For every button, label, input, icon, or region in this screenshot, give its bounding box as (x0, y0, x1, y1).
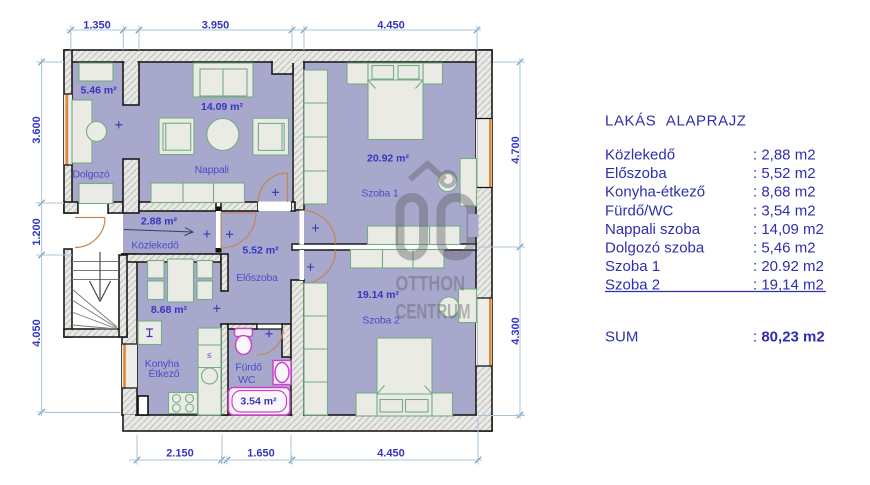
svg-text:CENTRUM: CENTRUM (396, 301, 471, 324)
svg-text:: 2,88 m2: : 2,88 m2 (753, 147, 816, 164)
svg-text:4.700: 4.700 (510, 136, 522, 164)
svg-text:14.09 m²: 14.09 m² (201, 101, 244, 113)
svg-text:1.650: 1.650 (247, 448, 275, 460)
svg-text:2.88 m²: 2.88 m² (141, 216, 178, 228)
svg-text:Szoba 2: Szoba 2 (362, 315, 399, 327)
svg-text:Dolgozó: Dolgozó (72, 169, 109, 181)
svg-text:Étkező: Étkező (149, 367, 180, 380)
svg-text:Fürdő/WC: Fürdő/WC (605, 202, 674, 219)
svg-text:Előszoba: Előszoba (605, 165, 667, 182)
svg-text:Nappali szoba: Nappali szoba (605, 221, 701, 238)
svg-text:SUM: SUM (605, 329, 638, 346)
svg-text:4.300: 4.300 (510, 317, 522, 345)
svg-text:Nappali: Nappali (195, 164, 229, 176)
svg-text:Dolgozó szoba: Dolgozó szoba (605, 240, 705, 257)
svg-text:2.150: 2.150 (166, 448, 194, 460)
svg-text:Konyha-étkező: Konyha-étkező (605, 184, 705, 201)
svg-text:3.950: 3.950 (202, 20, 230, 32)
svg-text:5.46 m²: 5.46 m² (81, 85, 118, 97)
svg-text:LAKÁS ALAPRAJZ: LAKÁS ALAPRAJZ (605, 113, 747, 130)
svg-text:3.600: 3.600 (31, 116, 43, 144)
svg-text:Szoba 1: Szoba 1 (361, 188, 398, 200)
svg-text:: 5,52 m2: : 5,52 m2 (753, 165, 816, 182)
svg-text:: 5,46 m2: : 5,46 m2 (753, 240, 816, 257)
svg-text:1.350: 1.350 (83, 20, 111, 32)
svg-text:: 8,68 m2: : 8,68 m2 (753, 184, 816, 201)
svg-text:WC: WC (238, 374, 256, 386)
svg-text:Előszoba: Előszoba (236, 272, 278, 284)
svg-text:: 3,54 m2: : 3,54 m2 (753, 202, 816, 219)
svg-text:4.450: 4.450 (377, 20, 405, 32)
svg-text:: 20.92 m2: : 20.92 m2 (753, 258, 824, 275)
svg-text:: 80,23 m2: : 80,23 m2 (753, 329, 825, 346)
svg-text:4.450: 4.450 (377, 448, 405, 460)
svg-text:4.050: 4.050 (31, 319, 43, 347)
svg-text:≤: ≤ (207, 351, 212, 360)
svg-text:Közlekedő: Közlekedő (131, 240, 179, 252)
svg-text:Fürdő: Fürdő (235, 362, 262, 374)
svg-text:1.200: 1.200 (31, 218, 43, 246)
svg-text:Közlekedő: Közlekedő (605, 147, 675, 164)
svg-text:19.14 m²: 19.14 m² (357, 289, 400, 301)
svg-text:OTTHON: OTTHON (396, 273, 466, 296)
svg-text:3.54 m²: 3.54 m² (240, 396, 277, 408)
svg-text:8.68 m²: 8.68 m² (151, 304, 188, 316)
svg-text:20.92 m²: 20.92 m² (367, 153, 410, 165)
svg-text:Szoba 1: Szoba 1 (605, 258, 660, 275)
svg-text:: 14,09 m2: : 14,09 m2 (753, 221, 824, 238)
svg-text:5.52 m²: 5.52 m² (242, 245, 279, 257)
